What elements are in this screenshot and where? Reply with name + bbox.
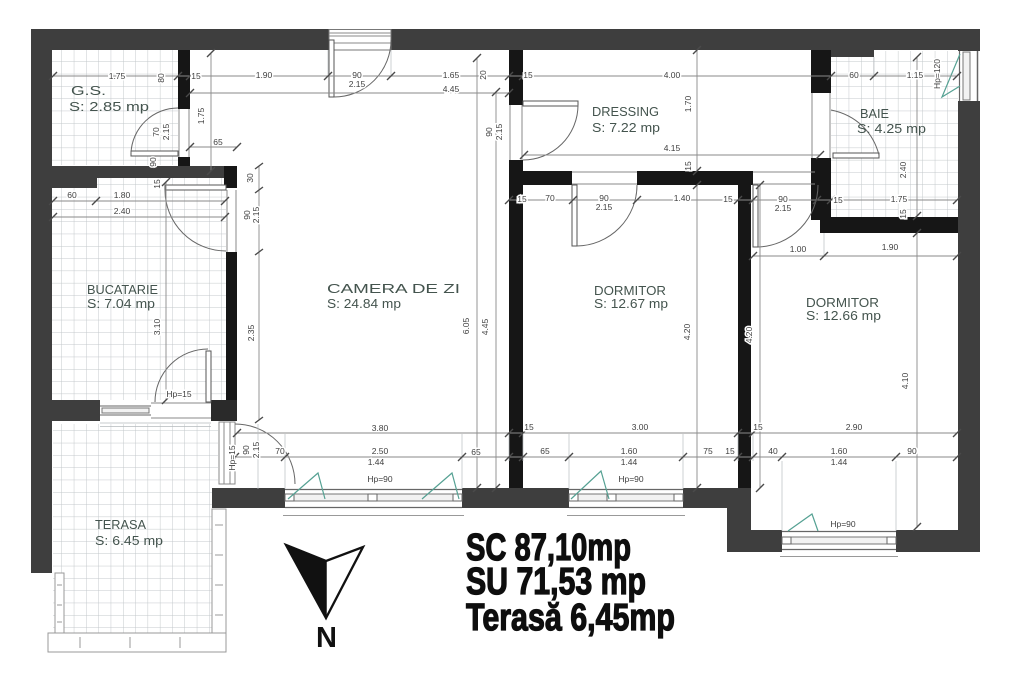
svg-text:Hp=120: Hp=120 bbox=[932, 59, 942, 89]
svg-text:S: 7.04 mp: S: 7.04 mp bbox=[87, 296, 155, 311]
svg-text:70: 70 bbox=[151, 127, 161, 137]
svg-text:3.00: 3.00 bbox=[632, 422, 649, 432]
svg-text:S: 12.66 mp: S: 12.66 mp bbox=[806, 308, 881, 323]
svg-text:40: 40 bbox=[768, 446, 778, 456]
svg-text:60: 60 bbox=[849, 70, 859, 80]
svg-text:S: 24.84 mp: S: 24.84 mp bbox=[327, 296, 401, 311]
svg-text:Hp=15: Hp=15 bbox=[227, 445, 237, 471]
svg-text:30: 30 bbox=[245, 173, 255, 183]
svg-text:1.75: 1.75 bbox=[891, 194, 908, 204]
svg-text:2.15: 2.15 bbox=[251, 441, 261, 458]
svg-text:4.20: 4.20 bbox=[682, 323, 692, 340]
svg-text:Hp=15: Hp=15 bbox=[166, 389, 192, 399]
svg-text:1.44: 1.44 bbox=[831, 457, 848, 467]
svg-text:Hp=90: Hp=90 bbox=[367, 474, 393, 484]
svg-text:CAMERA DE ZI: CAMERA DE ZI bbox=[327, 281, 460, 296]
svg-text:90: 90 bbox=[241, 445, 251, 455]
svg-text:65: 65 bbox=[471, 447, 481, 457]
svg-text:S: 6.45 mp: S: 6.45 mp bbox=[95, 533, 163, 548]
svg-text:3.10: 3.10 bbox=[152, 318, 162, 335]
svg-text:15: 15 bbox=[191, 71, 201, 81]
svg-text:2.40: 2.40 bbox=[114, 206, 131, 216]
svg-text:2.15: 2.15 bbox=[494, 123, 504, 140]
svg-text:4.00: 4.00 bbox=[664, 70, 681, 80]
svg-text:4.45: 4.45 bbox=[480, 318, 490, 335]
svg-text:1.60: 1.60 bbox=[621, 446, 638, 456]
svg-text:15: 15 bbox=[723, 194, 733, 204]
svg-text:15: 15 bbox=[753, 422, 763, 432]
svg-text:2.35: 2.35 bbox=[246, 324, 256, 341]
svg-text:Terasă 6,45mp: Terasă 6,45mp bbox=[466, 597, 675, 639]
svg-text:15: 15 bbox=[517, 194, 527, 204]
svg-text:1.75: 1.75 bbox=[109, 71, 126, 81]
svg-text:90: 90 bbox=[907, 446, 917, 456]
svg-text:15: 15 bbox=[524, 422, 534, 432]
svg-text:2.15: 2.15 bbox=[596, 202, 613, 212]
svg-text:1.90: 1.90 bbox=[256, 70, 273, 80]
svg-text:4.45: 4.45 bbox=[443, 84, 460, 94]
svg-text:80: 80 bbox=[156, 73, 166, 83]
svg-text:2.90: 2.90 bbox=[846, 422, 863, 432]
svg-text:1.60: 1.60 bbox=[831, 446, 848, 456]
svg-text:Hp=90: Hp=90 bbox=[618, 474, 644, 484]
svg-text:4.10: 4.10 bbox=[900, 372, 910, 389]
svg-text:90: 90 bbox=[484, 127, 494, 137]
svg-text:70: 70 bbox=[275, 446, 285, 456]
svg-text:75: 75 bbox=[703, 446, 713, 456]
svg-text:1.65: 1.65 bbox=[443, 70, 460, 80]
svg-text:2.15: 2.15 bbox=[161, 123, 171, 140]
svg-text:1.70: 1.70 bbox=[683, 95, 693, 112]
svg-text:Hp=90: Hp=90 bbox=[830, 519, 856, 529]
svg-text:TERASA: TERASA bbox=[95, 517, 146, 532]
svg-text:15: 15 bbox=[898, 209, 908, 219]
svg-text:1.40: 1.40 bbox=[674, 193, 691, 203]
svg-text:1.75: 1.75 bbox=[196, 107, 206, 124]
svg-text:15: 15 bbox=[152, 179, 162, 189]
svg-text:G.S.: G.S. bbox=[71, 83, 106, 98]
svg-text:BAIE: BAIE bbox=[860, 106, 889, 121]
svg-text:S: 2.85 mp: S: 2.85 mp bbox=[69, 99, 149, 114]
svg-text:2.40: 2.40 bbox=[898, 161, 908, 178]
svg-text:15: 15 bbox=[725, 446, 735, 456]
svg-text:N: N bbox=[316, 622, 337, 654]
svg-text:1.00: 1.00 bbox=[790, 244, 807, 254]
svg-text:15: 15 bbox=[523, 70, 533, 80]
svg-text:60: 60 bbox=[67, 190, 77, 200]
svg-text:6.05: 6.05 bbox=[461, 317, 471, 334]
svg-text:1.44: 1.44 bbox=[368, 457, 385, 467]
svg-text:2.15: 2.15 bbox=[251, 206, 261, 223]
svg-text:2.15: 2.15 bbox=[349, 79, 366, 89]
svg-text:2.15: 2.15 bbox=[775, 203, 792, 213]
svg-text:BUCATARIE: BUCATARIE bbox=[87, 282, 158, 297]
svg-text:15: 15 bbox=[683, 161, 693, 171]
svg-text:65: 65 bbox=[213, 137, 223, 147]
svg-text:70: 70 bbox=[545, 193, 555, 203]
svg-text:S: 7.22 mp: S: 7.22 mp bbox=[592, 120, 660, 135]
svg-text:1.80: 1.80 bbox=[114, 190, 131, 200]
svg-text:4.20: 4.20 bbox=[744, 326, 754, 343]
svg-text:3.80: 3.80 bbox=[372, 423, 389, 433]
svg-text:65: 65 bbox=[540, 446, 550, 456]
svg-text:1.90: 1.90 bbox=[882, 242, 899, 252]
svg-text:1.44: 1.44 bbox=[621, 457, 638, 467]
svg-text:15: 15 bbox=[833, 195, 843, 205]
svg-text:DRESSING: DRESSING bbox=[592, 104, 659, 119]
svg-text:90: 90 bbox=[148, 157, 158, 167]
svg-text:20: 20 bbox=[478, 70, 488, 80]
svg-text:S: 4.25 mp: S: 4.25 mp bbox=[857, 121, 926, 136]
svg-text:S: 12.67 mp: S: 12.67 mp bbox=[594, 296, 668, 311]
svg-text:2.50: 2.50 bbox=[372, 446, 389, 456]
svg-text:4.15: 4.15 bbox=[664, 143, 681, 153]
svg-text:1.15: 1.15 bbox=[907, 70, 924, 80]
